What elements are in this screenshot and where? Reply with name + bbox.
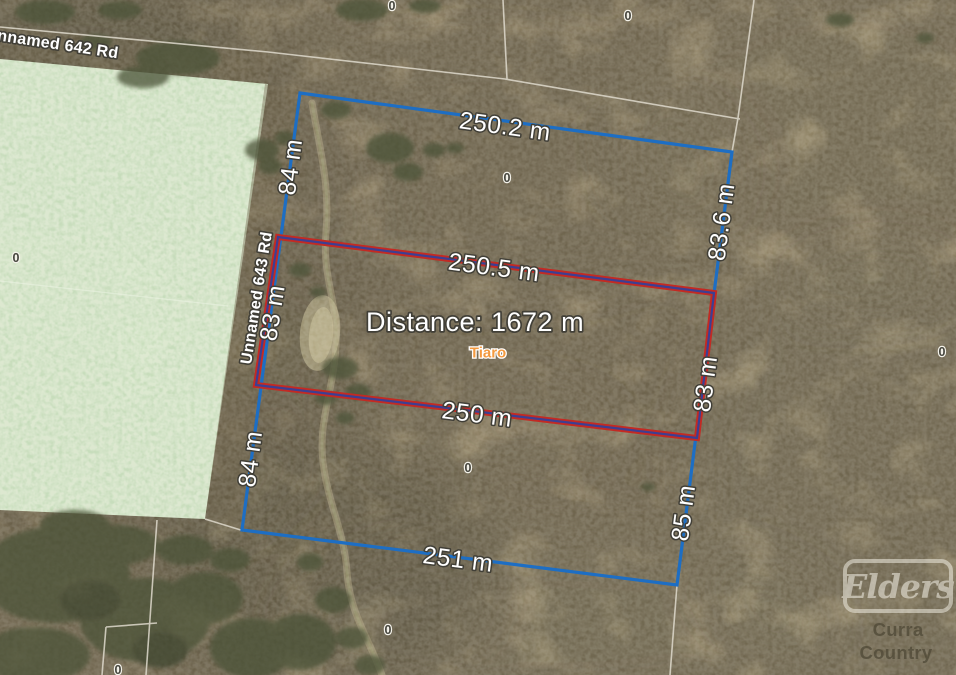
zero-marker: 0	[385, 623, 392, 637]
watermark-region-line1: Curra	[873, 619, 924, 640]
distance-label: Distance: 1672 m	[366, 307, 584, 337]
zero-marker: 0	[13, 251, 20, 265]
aerial-map: Unnamed 642 Rd Unnamed 643 Rd 250.2 m 84…	[0, 0, 956, 675]
town-label: Tiaro	[470, 345, 506, 362]
zero-marker: 0	[465, 461, 472, 475]
zero-marker: 0	[115, 663, 122, 675]
elders-logo-text: Elders	[841, 567, 954, 606]
zero-marker: 0	[625, 9, 632, 23]
map-canvas[interactable]: Unnamed 642 Rd Unnamed 643 Rd 250.2 m 84…	[0, 0, 956, 675]
zero-marker: 0	[504, 171, 511, 185]
zero-marker: 0	[389, 0, 396, 13]
zero-marker: 0	[939, 345, 946, 359]
watermark-region-line2: Country	[859, 642, 932, 663]
